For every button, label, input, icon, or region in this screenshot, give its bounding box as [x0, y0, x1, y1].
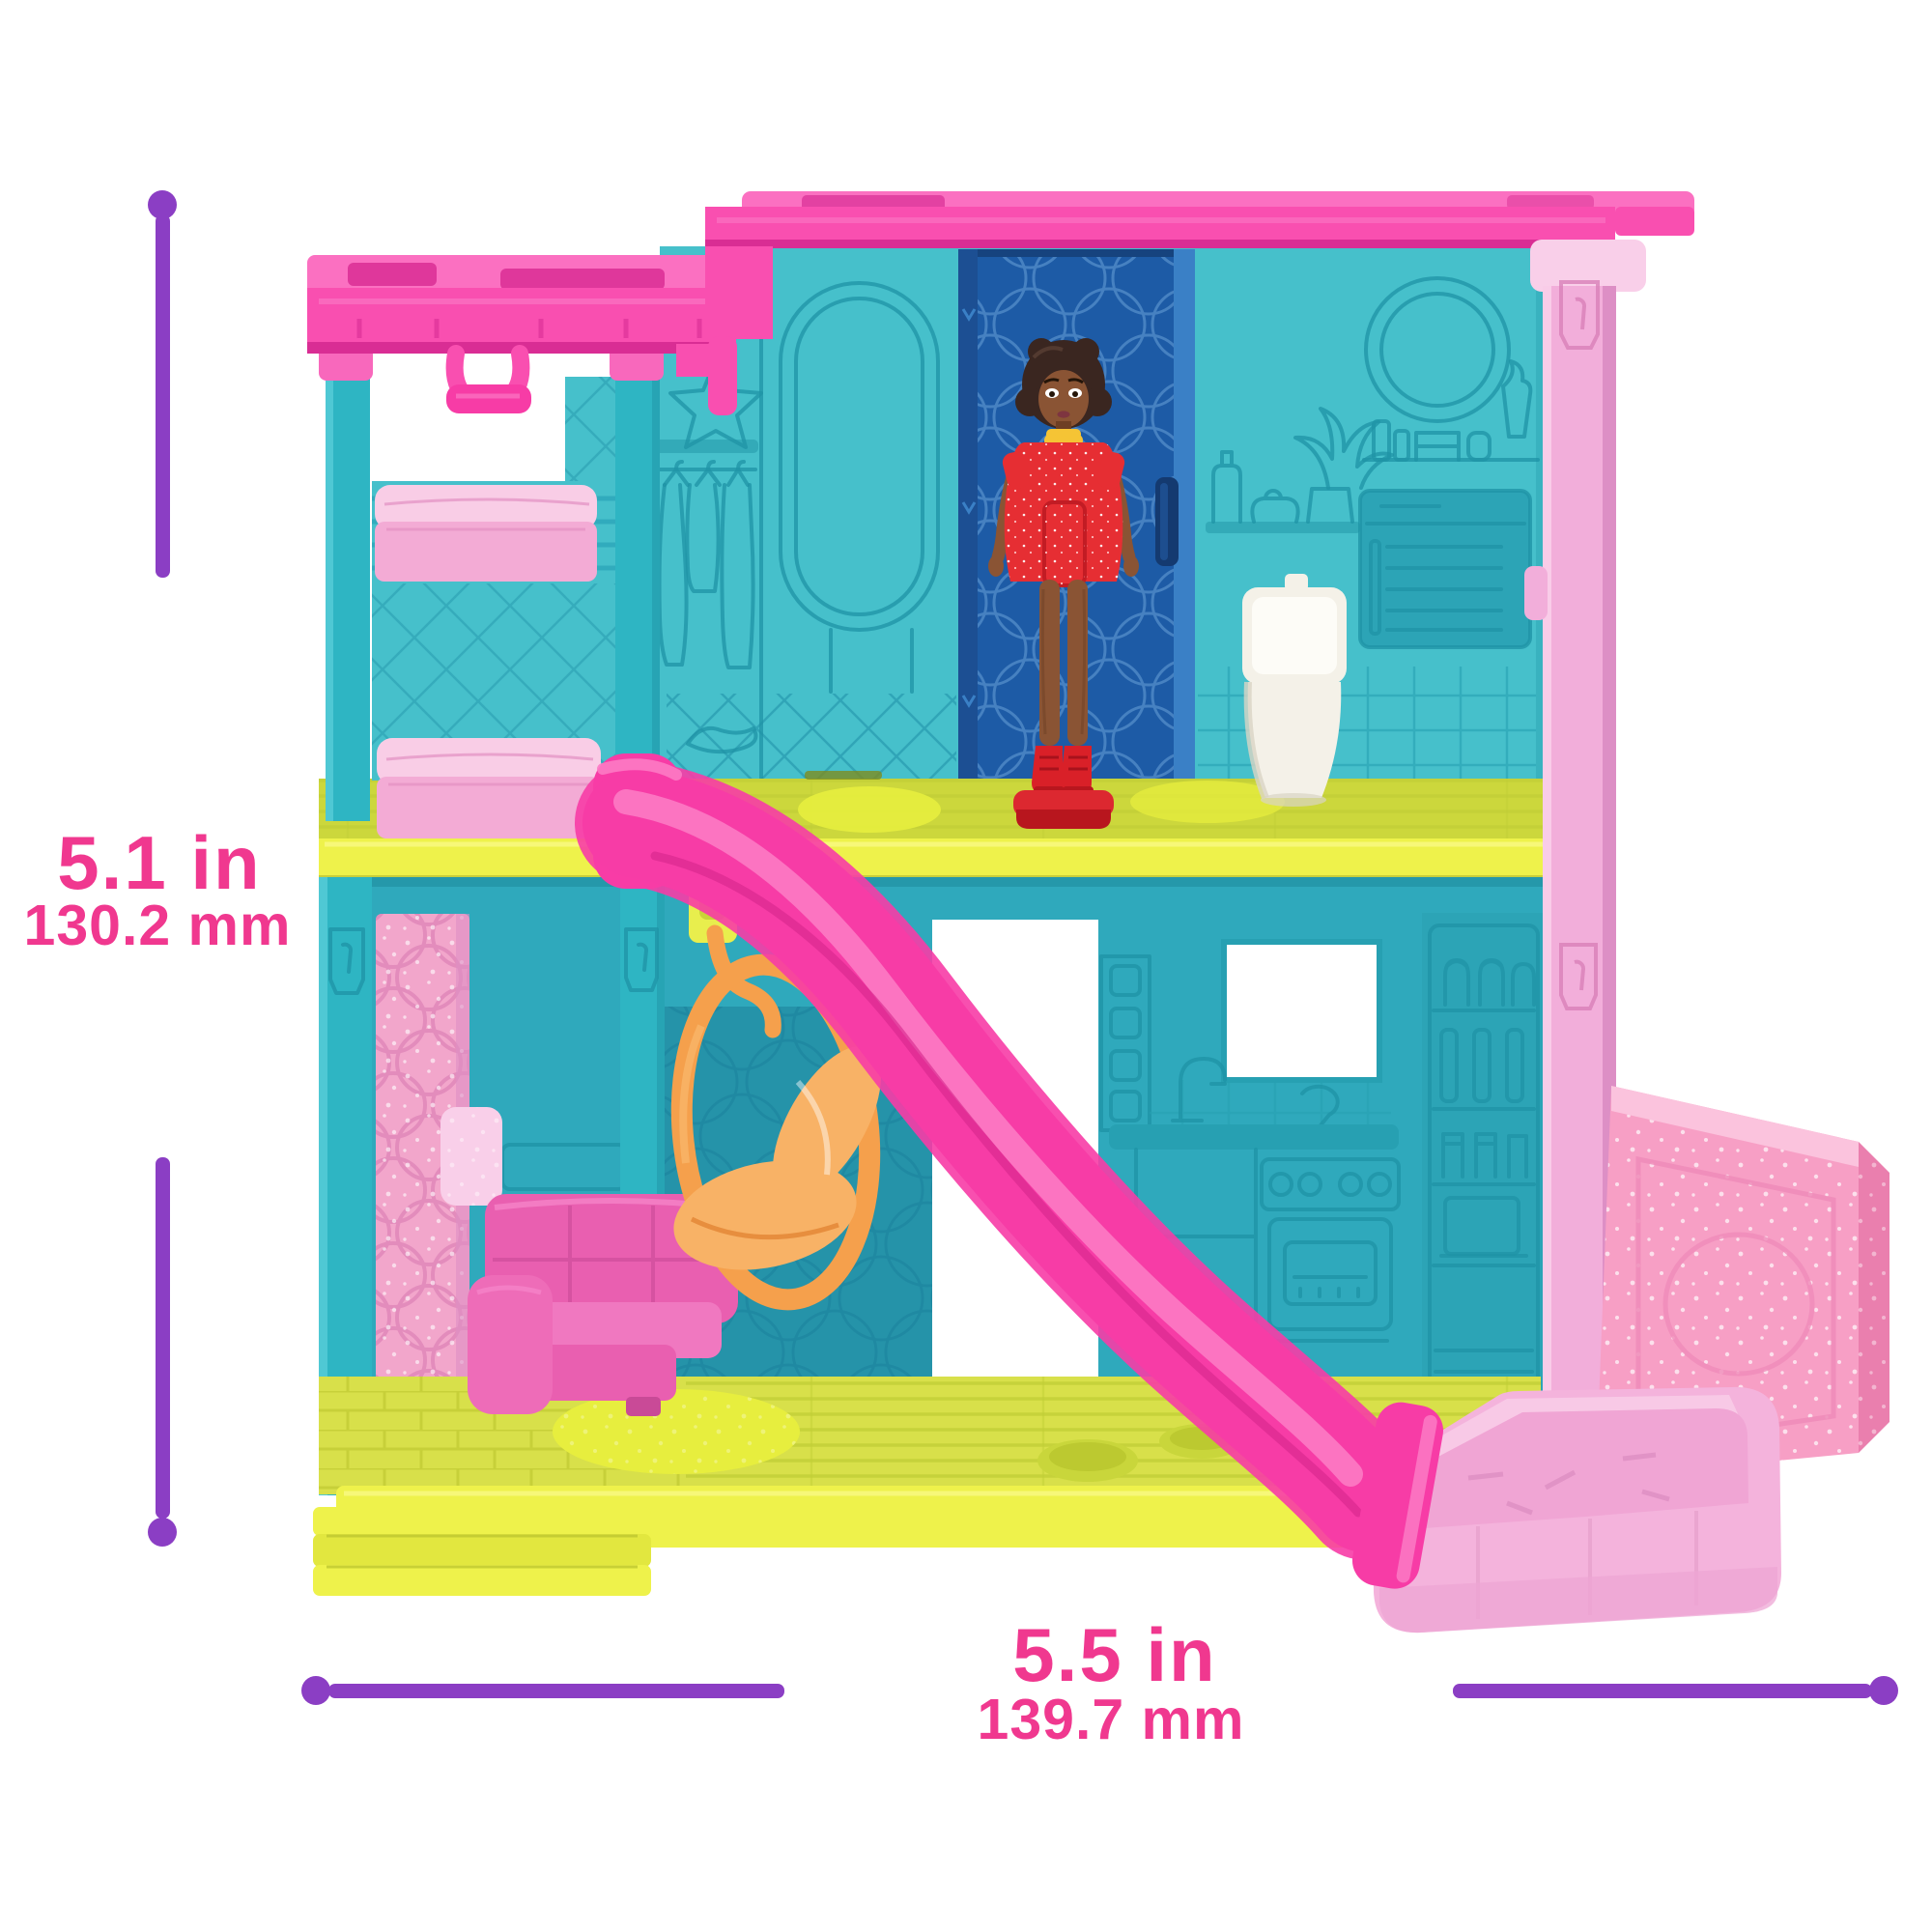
porch-step: [313, 1507, 651, 1596]
bunk-bed-lower: [377, 738, 601, 838]
door-handle: [1155, 477, 1179, 566]
column-knob: [1524, 566, 1548, 620]
fridge-emboss: [1422, 913, 1546, 1439]
laundry-cabinet-emboss: [1360, 491, 1530, 647]
width-line-left-dot: [301, 1676, 330, 1705]
dollhouse-illustration: 5.1 in 130.2 mm 5.5 in 139.7 mm: [0, 0, 1932, 1932]
product-dimension-image: 5.1 in 130.2 mm 5.5 in 139.7 mm: [0, 0, 1932, 1932]
width-mm-label: 139.7 mm: [978, 1688, 1245, 1751]
second-floor-slab-face: [319, 838, 1605, 881]
doll-dress: [1001, 442, 1126, 585]
width-inches-label: 5.5 in: [1012, 1612, 1216, 1697]
height-dimension: 5.1 in 130.2 mm: [24, 190, 292, 1547]
width-line-right-dot: [1869, 1676, 1898, 1705]
height-line-bottom-dot: [148, 1518, 177, 1547]
doll-boots: [1032, 746, 1094, 796]
height-inches-label: 5.1 in: [57, 820, 261, 905]
width-dimension: 5.5 in 139.7 mm: [301, 1612, 1898, 1751]
bunk-bed-upper: [375, 485, 597, 582]
kitchen-counter: [1109, 1124, 1399, 1150]
height-line-top-segment: [156, 214, 170, 578]
floor-rug-sparkle-left: [798, 786, 941, 833]
width-line-left-segment: [328, 1684, 784, 1698]
doll-stand-base: [1013, 790, 1114, 829]
height-mm-label: 130.2 mm: [24, 894, 292, 957]
floor-slot: [805, 771, 882, 780]
height-line-bottom-segment: [156, 1157, 170, 1519]
roof-left-bracket: [705, 246, 773, 339]
doll-face: [1038, 370, 1089, 428]
clothes-hanger-hook: [446, 354, 531, 413]
width-line-right-segment: [1453, 1684, 1872, 1698]
kitchen-window: [1224, 942, 1379, 1080]
